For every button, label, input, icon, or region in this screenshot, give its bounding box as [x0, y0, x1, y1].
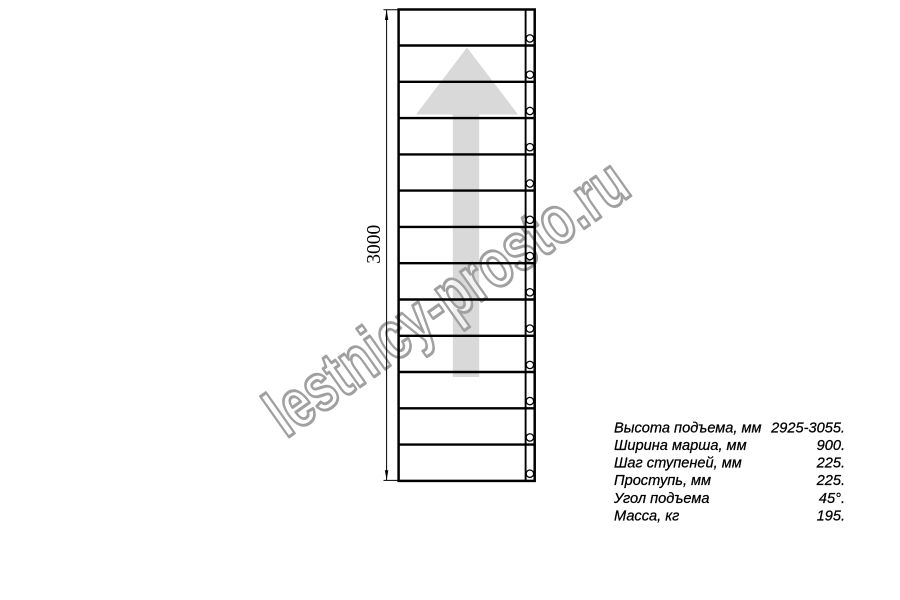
- svg-text:225.: 225.: [816, 473, 845, 489]
- svg-text:900.: 900.: [817, 438, 845, 454]
- svg-text:Ширина марша, мм: Ширина марша, мм: [614, 438, 747, 454]
- svg-text:Шаг ступеней, мм: Шаг ступеней, мм: [614, 456, 742, 472]
- svg-text:Угол подъема: Угол подъема: [613, 491, 709, 507]
- svg-text:2925-3055.: 2925-3055.: [770, 420, 845, 436]
- svg-text:Проступь, мм: Проступь, мм: [614, 473, 711, 489]
- svg-text:Масса, кг: Масса, кг: [614, 508, 679, 524]
- svg-text:Высота подъема, мм: Высота подъема, мм: [614, 420, 762, 436]
- svg-text:45°.: 45°.: [819, 491, 845, 507]
- svg-text:195.: 195.: [817, 508, 845, 524]
- svg-text:3000: 3000: [364, 225, 385, 264]
- svg-text:225.: 225.: [816, 456, 845, 472]
